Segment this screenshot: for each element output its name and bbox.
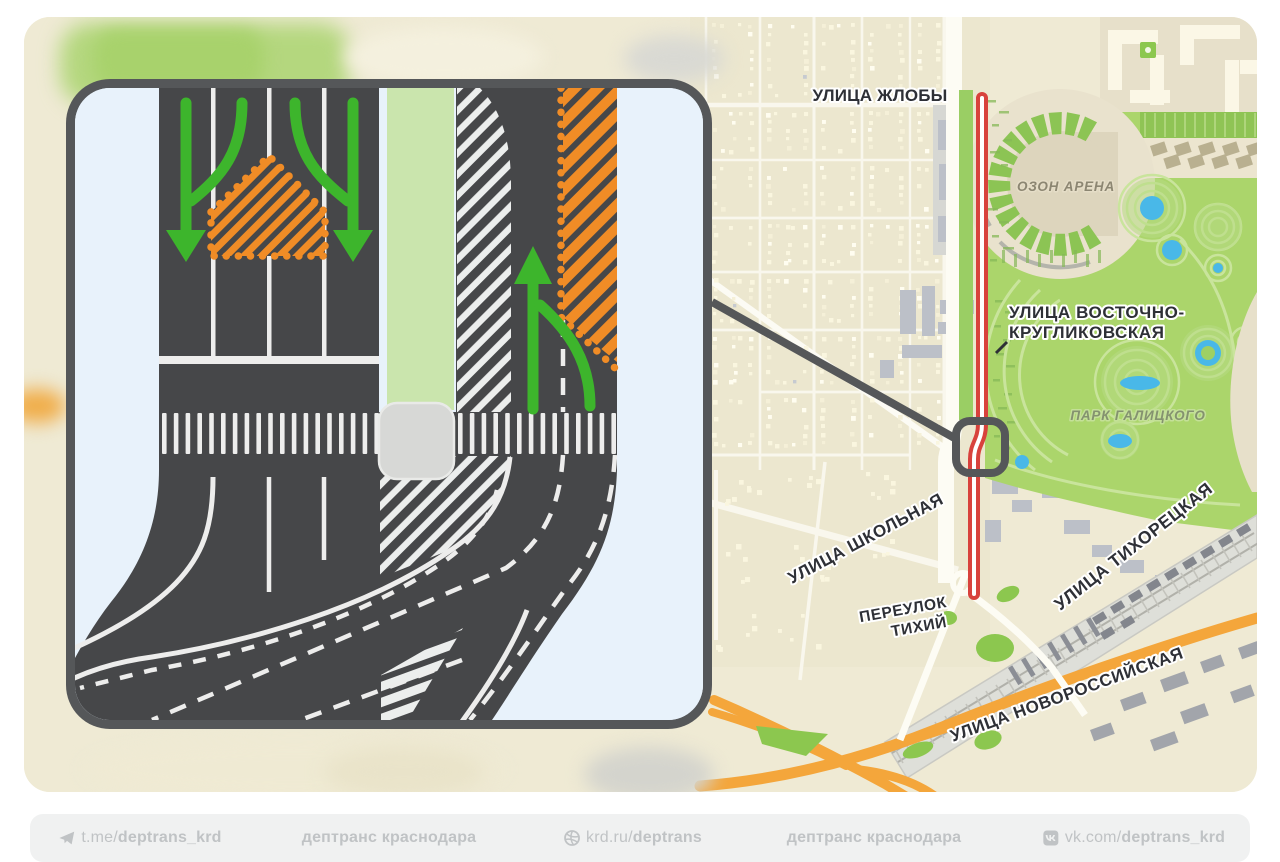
svg-text:ПАРК ГАЛИЦКОГО: ПАРК ГАЛИЦКОГО xyxy=(1070,408,1205,423)
svg-text:УЛИЦА ВОСТОЧНО-: УЛИЦА ВОСТОЧНО- xyxy=(1009,303,1185,322)
svg-text:УЛИЦА ЖЛОБЫ: УЛИЦА ЖЛОБЫ xyxy=(812,86,947,105)
svg-text:ОЗОН АРЕНА: ОЗОН АРЕНА xyxy=(1017,179,1115,194)
svg-text:КРУГЛИКОВСКАЯ: КРУГЛИКОВСКАЯ xyxy=(1009,323,1165,342)
